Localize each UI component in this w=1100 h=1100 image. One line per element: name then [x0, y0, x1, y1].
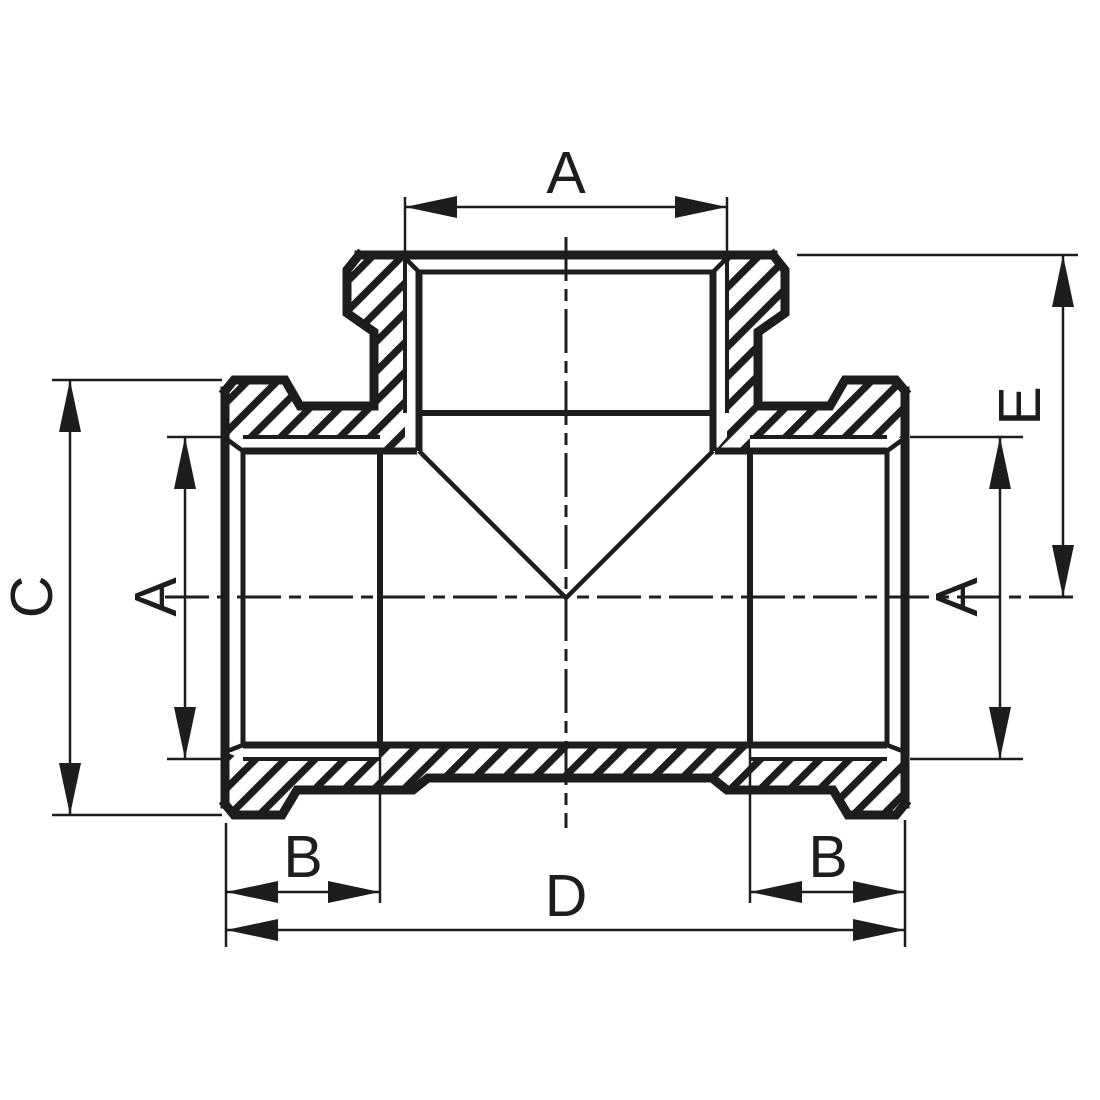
wall-right-top: [715, 255, 905, 451]
dimension-label-e-right: E: [987, 386, 1053, 425]
tee-fitting-technical-drawing: A C A A E B B D: [0, 0, 1100, 1100]
dimension-label-d-bottom: D: [545, 863, 588, 929]
dimension-label-b-left: B: [283, 824, 322, 890]
dimension-label-c-left: C: [0, 576, 65, 619]
dimension-label-a-top: A: [546, 140, 586, 206]
centerlines: [165, 237, 1078, 828]
branch-right-chamfer: [713, 258, 727, 272]
wall-left-top: [225, 255, 417, 451]
drawing-canvas: A C A A E B B D: [0, 0, 1100, 1100]
dimension-label-b-right: B: [808, 824, 847, 890]
branch-left-chamfer: [405, 258, 419, 272]
dimension-label-a-right: A: [924, 577, 990, 617]
dimension-label-a-left: A: [123, 577, 189, 617]
